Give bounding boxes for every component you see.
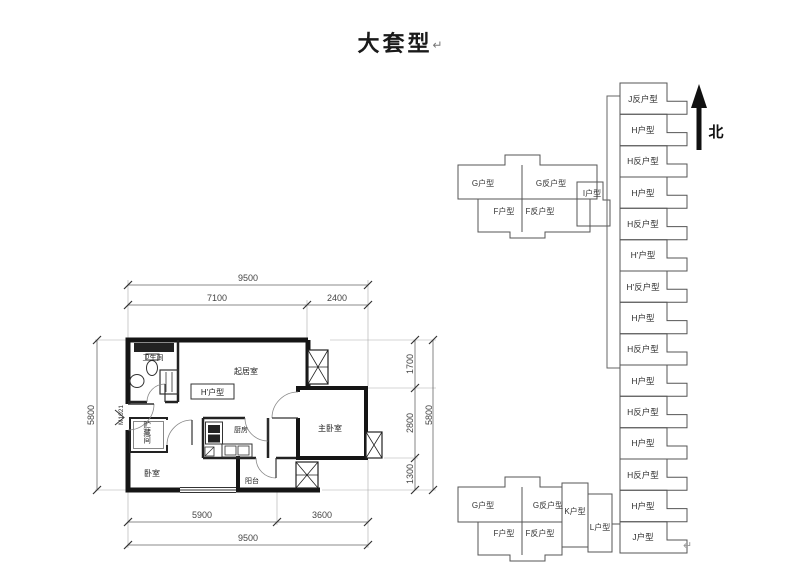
dim-right-total: 5800	[424, 405, 434, 425]
strip-unit-label: H'户型	[631, 250, 656, 260]
keyplan-unit-label: G户型	[472, 500, 494, 510]
door-code-label: M1021	[118, 405, 125, 425]
dimension-ticks	[93, 281, 437, 549]
plan-drawing: 9500 7100 2400 5900 3600 9500 5800 1700 …	[0, 0, 800, 586]
keyplan-unit-label: G户型	[472, 178, 494, 188]
room-label-bedroom: 卧室	[144, 468, 160, 478]
strip-unit-label: H反户型	[627, 407, 659, 417]
room-label-living-room: 起居室	[234, 366, 258, 376]
window	[180, 488, 236, 493]
strip-unit-label: H户型	[631, 313, 655, 323]
keyplan-unit-label: F户型	[494, 528, 515, 538]
keyplan-unit-label: L户型	[590, 522, 610, 532]
paragraph-return-mark-bottom: ↵	[683, 539, 692, 552]
north-label: 北	[708, 124, 723, 141]
keyplan-unit-label: F反户型	[526, 528, 555, 538]
keyplan-unit-label: I户型	[583, 188, 601, 198]
north-arrow-icon	[691, 84, 707, 108]
room-label-bathroom: 卫生间	[143, 353, 164, 362]
keyplan-unit-label: G反户型	[536, 178, 566, 188]
keyplan-lower-block	[458, 477, 620, 561]
strip-unit-label: H户型	[631, 501, 655, 511]
room-label-kitchen: 厨房	[234, 425, 248, 434]
room-label-balcony: 阳台	[245, 476, 259, 485]
unit-label: H'户型	[201, 387, 224, 397]
dim-bottom-right: 3600	[312, 510, 332, 520]
strip-unit-label: J反户型	[628, 94, 658, 104]
dim-top-right: 2400	[327, 293, 347, 303]
key-plan: G户型 G反户型 F户型 F反户型 I户型 G户型 G反户型 F户型 F反户型 …	[458, 83, 687, 561]
washer-cabinet	[160, 370, 178, 394]
bathtub	[134, 343, 174, 352]
strip-unit-label: H户型	[631, 438, 655, 448]
dim-top-total: 9500	[238, 273, 258, 283]
dim-right-middle: 2800	[405, 413, 415, 433]
document-page: 大套型↵ 9500 7100 2400 5900 3600 9500 5800	[0, 0, 800, 586]
dim-top-left: 7100	[207, 293, 227, 303]
keyplan-unit-label: F反户型	[526, 206, 555, 216]
strip-unit-label: H反户型	[627, 470, 659, 480]
dim-bottom-left: 5900	[192, 510, 212, 520]
room-label-master-bedroom: 主卧室	[318, 423, 342, 433]
extension-lines	[95, 280, 436, 548]
bathroom-fixtures	[130, 343, 178, 394]
dimension-lines	[97, 285, 433, 545]
room-label-storage: 贮藏间	[142, 421, 151, 444]
dim-right-lower: 1300	[405, 464, 415, 484]
strip-unit-label: H反户型	[627, 219, 659, 229]
strip-unit-label: H户型	[631, 376, 655, 386]
sink	[130, 375, 144, 388]
strip-unit-label: H反户型	[627, 156, 659, 166]
keyplan-unit-label: G反户型	[533, 500, 563, 510]
dim-left-total: 5800	[86, 405, 96, 425]
keyplan-connector-line	[607, 96, 620, 368]
strip-unit-label: H户型	[631, 188, 655, 198]
north-arrow: 北	[691, 84, 724, 150]
strip-unit-label: H'反户型	[626, 282, 660, 292]
floor-plan: 9500 7100 2400 5900 3600 9500 5800 1700 …	[86, 273, 437, 549]
strip-unit-label: J户型	[632, 532, 654, 542]
strip-unit-label: H户型	[631, 125, 655, 135]
dim-right-upper: 1700	[405, 354, 415, 374]
keyplan-unit-label: F户型	[494, 206, 515, 216]
keyplan-unit-label: K户型	[564, 506, 585, 516]
toilet-bowl	[147, 361, 158, 376]
shaft-symbols	[296, 350, 382, 488]
strip-unit-label: H反户型	[627, 344, 659, 354]
dim-bottom-total: 9500	[238, 533, 258, 543]
